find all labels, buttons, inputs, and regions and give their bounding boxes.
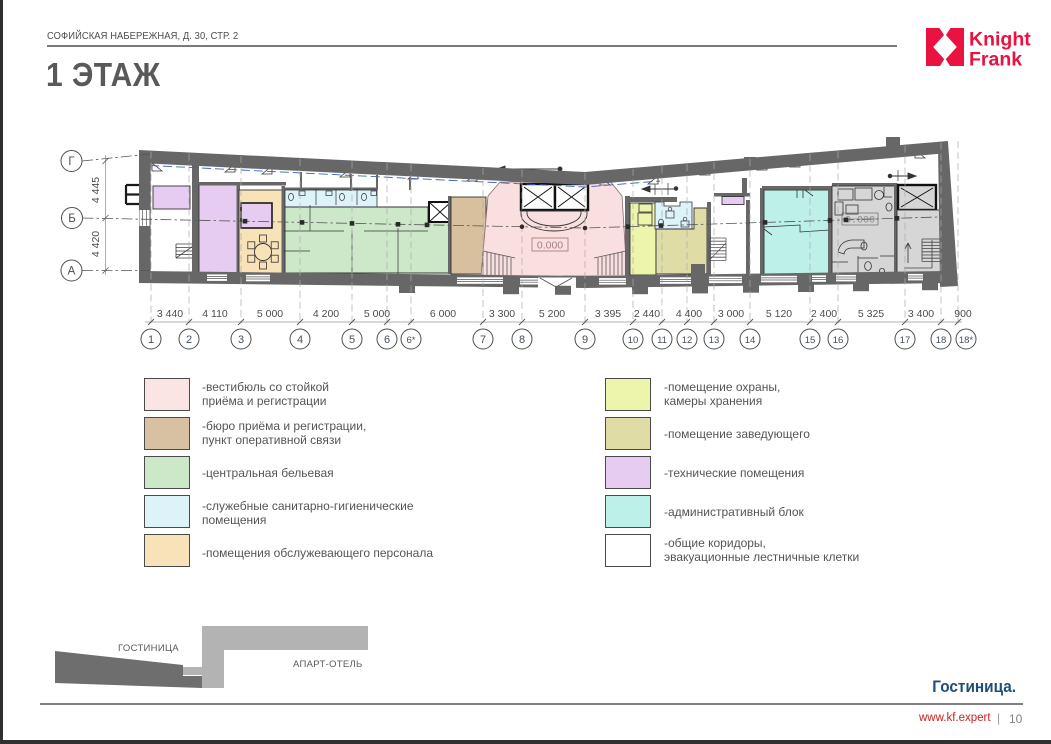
svg-text:6: 6 bbox=[384, 334, 390, 346]
svg-text:0.000: 0.000 bbox=[537, 240, 563, 252]
svg-text:3: 3 bbox=[238, 334, 244, 346]
svg-text:А: А bbox=[68, 266, 76, 278]
svg-text:3 400: 3 400 bbox=[908, 308, 934, 320]
svg-text:900: 900 bbox=[954, 308, 972, 320]
svg-text:6*: 6* bbox=[407, 335, 416, 346]
svg-text:3 395: 3 395 bbox=[595, 308, 621, 320]
svg-text:0.000: 0.000 bbox=[845, 216, 875, 227]
svg-text:12: 12 bbox=[682, 335, 693, 346]
svg-text:4: 4 bbox=[297, 334, 303, 346]
svg-text:18*: 18* bbox=[959, 335, 974, 346]
svg-text:8: 8 bbox=[519, 334, 525, 346]
svg-text:4 445: 4 445 bbox=[90, 177, 102, 203]
svg-text:1: 1 bbox=[148, 334, 154, 346]
svg-text:10: 10 bbox=[628, 335, 639, 346]
svg-text:18: 18 bbox=[936, 335, 947, 346]
svg-text:4 110: 4 110 bbox=[202, 308, 228, 320]
svg-text:11: 11 bbox=[657, 335, 667, 346]
svg-text:Г: Г bbox=[68, 156, 75, 168]
svg-text:5 000: 5 000 bbox=[257, 308, 283, 320]
svg-text:2: 2 bbox=[186, 334, 192, 346]
svg-text:5 325: 5 325 bbox=[858, 308, 884, 320]
svg-text:5 200: 5 200 bbox=[539, 308, 565, 320]
svg-text:2 400: 2 400 bbox=[811, 308, 837, 320]
svg-text:4 200: 4 200 bbox=[313, 308, 339, 320]
svg-text:13: 13 bbox=[709, 335, 720, 346]
svg-text:Б: Б bbox=[68, 213, 76, 225]
svg-text:4 400: 4 400 bbox=[676, 308, 702, 320]
svg-text:5: 5 bbox=[349, 334, 355, 346]
svg-text:3 000: 3 000 bbox=[718, 308, 744, 320]
svg-text:4 420: 4 420 bbox=[90, 231, 102, 257]
svg-text:3 300: 3 300 bbox=[489, 308, 515, 320]
svg-text:7: 7 bbox=[480, 334, 486, 346]
svg-text:2 440: 2 440 bbox=[634, 308, 660, 320]
svg-text:14: 14 bbox=[745, 335, 756, 346]
svg-text:6 000: 6 000 bbox=[430, 308, 456, 320]
svg-text:16: 16 bbox=[833, 335, 844, 346]
svg-text:17: 17 bbox=[900, 335, 911, 346]
svg-text:9: 9 bbox=[582, 334, 588, 346]
svg-text:3 440: 3 440 bbox=[157, 308, 183, 320]
svg-text:5 000: 5 000 bbox=[364, 308, 390, 320]
svg-text:15: 15 bbox=[805, 335, 816, 346]
svg-text:5 120: 5 120 bbox=[766, 308, 792, 320]
